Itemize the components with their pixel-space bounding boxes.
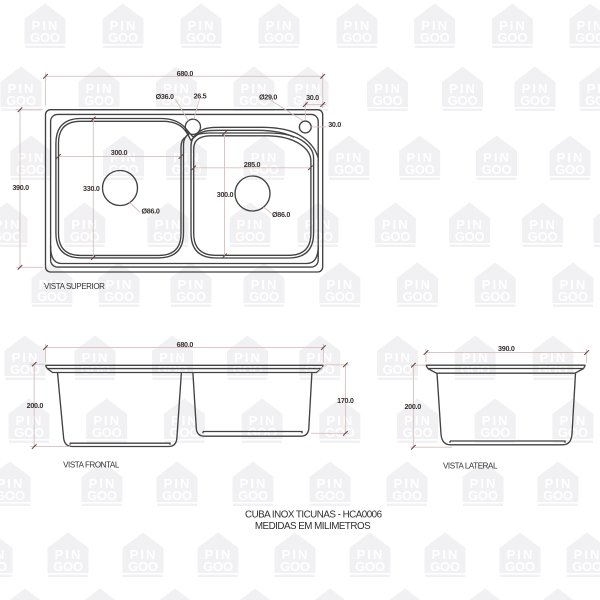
svg-text:285.0: 285.0 — [244, 160, 261, 169]
svg-text:390.0: 390.0 — [12, 183, 29, 192]
svg-text:200.0: 200.0 — [27, 401, 44, 410]
svg-text:VISTA SUPERIOR: VISTA SUPERIOR — [44, 282, 105, 291]
svg-text:Ø86.0: Ø86.0 — [272, 210, 290, 219]
svg-text:Ø36.0: Ø36.0 — [156, 92, 174, 101]
svg-text:Ø86.0: Ø86.0 — [141, 207, 159, 216]
svg-text:300.0: 300.0 — [111, 148, 128, 157]
svg-text:26.5: 26.5 — [194, 91, 207, 100]
svg-text:VISTA FRONTAL: VISTA FRONTAL — [63, 461, 120, 470]
svg-text:680.0: 680.0 — [177, 69, 194, 78]
svg-text:30.0: 30.0 — [328, 120, 341, 129]
svg-text:680.0: 680.0 — [177, 340, 194, 349]
svg-text:30.0: 30.0 — [306, 93, 319, 102]
svg-text:Ø29.0: Ø29.0 — [259, 93, 277, 102]
svg-text:390.0: 390.0 — [498, 344, 515, 353]
svg-text:MEDIDAS EM MILIMETROS: MEDIDAS EM MILIMETROS — [255, 521, 371, 532]
svg-text:200.0: 200.0 — [404, 402, 421, 411]
svg-text:VISTA LATERAL: VISTA LATERAL — [443, 461, 498, 470]
svg-text:170.0: 170.0 — [337, 396, 354, 405]
svg-text:300.0: 300.0 — [217, 190, 234, 199]
svg-text:330.0: 330.0 — [83, 184, 100, 193]
svg-text:CUBA INOX TICUNAS - HCA0006: CUBA INOX TICUNAS - HCA0006 — [245, 510, 383, 521]
